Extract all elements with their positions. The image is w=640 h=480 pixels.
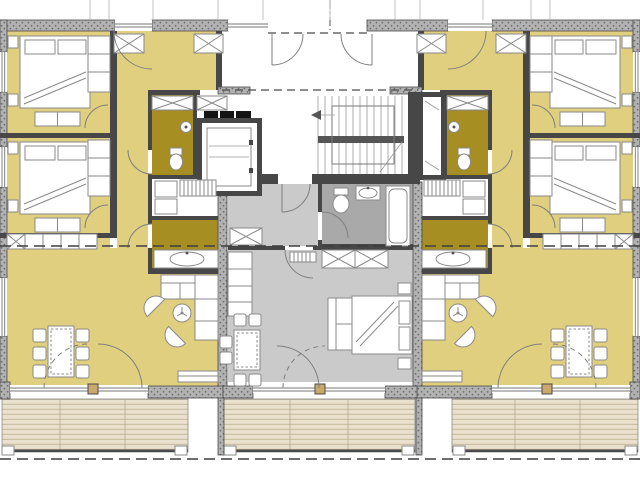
chair [33,329,46,342]
facade-left-3 [0,187,7,278]
pillow [25,40,55,54]
nightstand [622,36,632,48]
window-bedroom2-right [633,147,640,187]
party-wall-left-balcony [218,390,224,455]
chair [551,365,564,378]
wardrobe-left-2 [88,140,110,196]
nightstand [622,94,632,106]
closet-x-elevator-front [197,96,227,110]
chair [594,365,607,378]
kitchenette-center [228,252,252,316]
facade-top-2 [152,20,228,31]
terrace-left-edge [2,450,188,453]
chair [249,314,261,326]
wall-bath1-top-left [148,90,200,95]
dining-set-left [33,326,89,378]
chair [594,329,607,342]
closet-x-hall-right-1 [417,34,446,53]
radiator-center [290,252,316,262]
facade-bottom-cap-left [148,386,223,398]
elevator-control-marks [204,111,251,118]
pillow [555,40,583,54]
closet-x-bath-left [152,96,193,110]
radiator-manifold-right [424,180,460,196]
facade-bottom-left-end [0,382,10,399]
floor-plan-canvas [0,0,640,480]
bed-right-1 [550,36,620,108]
party-wall-right-balcony [416,390,422,455]
dresser-left-1 [35,112,80,126]
pillow [586,40,616,54]
chair [76,329,89,342]
facade-bottom-cap-center-l [223,386,253,398]
plant-table-left [173,304,191,322]
wall-bath2-living-right [418,268,492,274]
chair [33,347,46,360]
chair [220,352,232,364]
closet-x-bath-right [447,96,488,110]
wall-bath1-right-left [193,95,197,175]
window-bedroom1-left [0,52,7,92]
chair [76,347,89,360]
wall-utility-bath2-left [148,216,222,220]
door-vestibule-left [272,34,303,65]
bed-left-2 [20,142,90,214]
nightstand [622,142,632,154]
pillow [399,301,410,324]
chair [234,314,246,326]
facade-right-3 [633,187,640,278]
wall-utility-bath2-right [418,216,492,220]
closet-x-hall-center [230,228,262,245]
floor-plan-drawing [0,0,640,480]
nightstand [8,36,18,48]
dresser-right-2 [560,218,605,232]
vanity-left [154,250,218,268]
basin-center [356,186,380,200]
chair [249,374,261,386]
pillow [555,146,583,160]
toilet-right [458,148,471,170]
pillow [58,146,86,160]
plant-table-right [449,304,467,322]
wall-bedroom-hall-right [523,31,530,238]
dresser-left-2 [35,218,80,232]
door-vestibule-right [341,34,372,65]
nightstand [398,358,411,369]
facade-left-2 [0,92,7,147]
stair-landing [318,136,404,143]
party-wall-right [413,182,422,390]
window-living-left [0,278,7,336]
wall-bath1-top-right [440,90,492,95]
chair [220,336,232,348]
shower-head-right [449,122,460,133]
stair-treads [318,96,402,174]
vanity-right [422,250,486,268]
wall-stair-right [408,92,418,182]
wardrobe-left-1 [88,36,110,92]
nightstand [398,283,411,294]
wall-hall-bath-right-a [488,90,492,150]
window-vestibule-entrance [228,20,268,31]
facade-bottom-right-end [630,382,640,399]
facade-top-3 [367,20,448,31]
facade-left-1 [0,20,7,52]
washer-stack-left [155,181,177,214]
window-bedroom1-right [633,52,640,92]
facade-bottom-cap-right [417,386,492,398]
chair [551,347,564,360]
chair [594,347,607,360]
wall-bedrooms-left [0,133,117,138]
facade-top-4 [492,20,640,31]
balconies [2,399,638,455]
stair-handrail [332,106,394,164]
stair-direction-arrow [311,110,321,120]
pillow [58,40,86,54]
terrace-right-deck [452,399,638,452]
bed-right-2 [550,142,620,214]
facade-right-1 [633,20,640,52]
terrace-left-deck [2,399,188,452]
washer-stack-right [463,181,485,214]
balcony-center-edge [223,450,415,453]
shower-head-left [181,122,192,133]
pillow [399,327,410,350]
stair-walk-line [321,115,402,172]
chair [33,365,46,378]
closet-x-center [322,250,388,268]
chair [551,329,564,342]
toilet-left [170,148,183,170]
chair [234,374,246,386]
bed-center [352,296,412,354]
balcony-center-deck [223,399,415,452]
terrace-right-edge [452,450,638,453]
bench-sofa-center [328,298,352,350]
radiator-manifold-left [180,180,216,196]
wall-bedrooms-right [523,133,640,138]
pillow [586,146,616,160]
window-bedroom2-left [0,147,7,187]
nightstand [622,200,632,212]
window-entry-left [115,20,152,31]
wall-hall-bath-left-a [148,90,152,150]
tv-sideboard-right [422,371,462,382]
closet-x-hall-right-2 [496,34,526,53]
room-hall-right [492,90,523,268]
tv-sideboard-left [178,371,218,382]
stairs [311,96,404,174]
chair [76,365,89,378]
wardrobe-right-1 [530,36,552,92]
facade-bottom-cap-center-r [385,386,417,398]
wall-core-bottom-b [312,174,420,184]
pillow [25,146,55,160]
dining-set-right [551,326,607,378]
nightstand [8,142,18,154]
toilet-center [333,188,349,213]
closet-x-hall-left-2 [194,34,223,53]
room-hall-left [117,90,148,268]
wardrobe-right-2 [530,140,552,196]
wall-bedroom-hall-left [110,31,117,238]
nightstand [8,200,18,212]
wall-bath-center-a [318,184,322,212]
service-shaft [418,92,446,180]
facade-right-2 [633,92,640,147]
facade-top-1 [0,20,115,31]
bathtub-center [386,186,410,246]
grid-ticks [90,0,550,20]
bed-left-1 [20,36,90,108]
window-entry-right [448,20,492,31]
window-living-right [633,278,640,336]
nightstand [8,94,18,106]
dresser-right-1 [560,112,605,126]
wall-bath2-living-left [148,268,222,274]
